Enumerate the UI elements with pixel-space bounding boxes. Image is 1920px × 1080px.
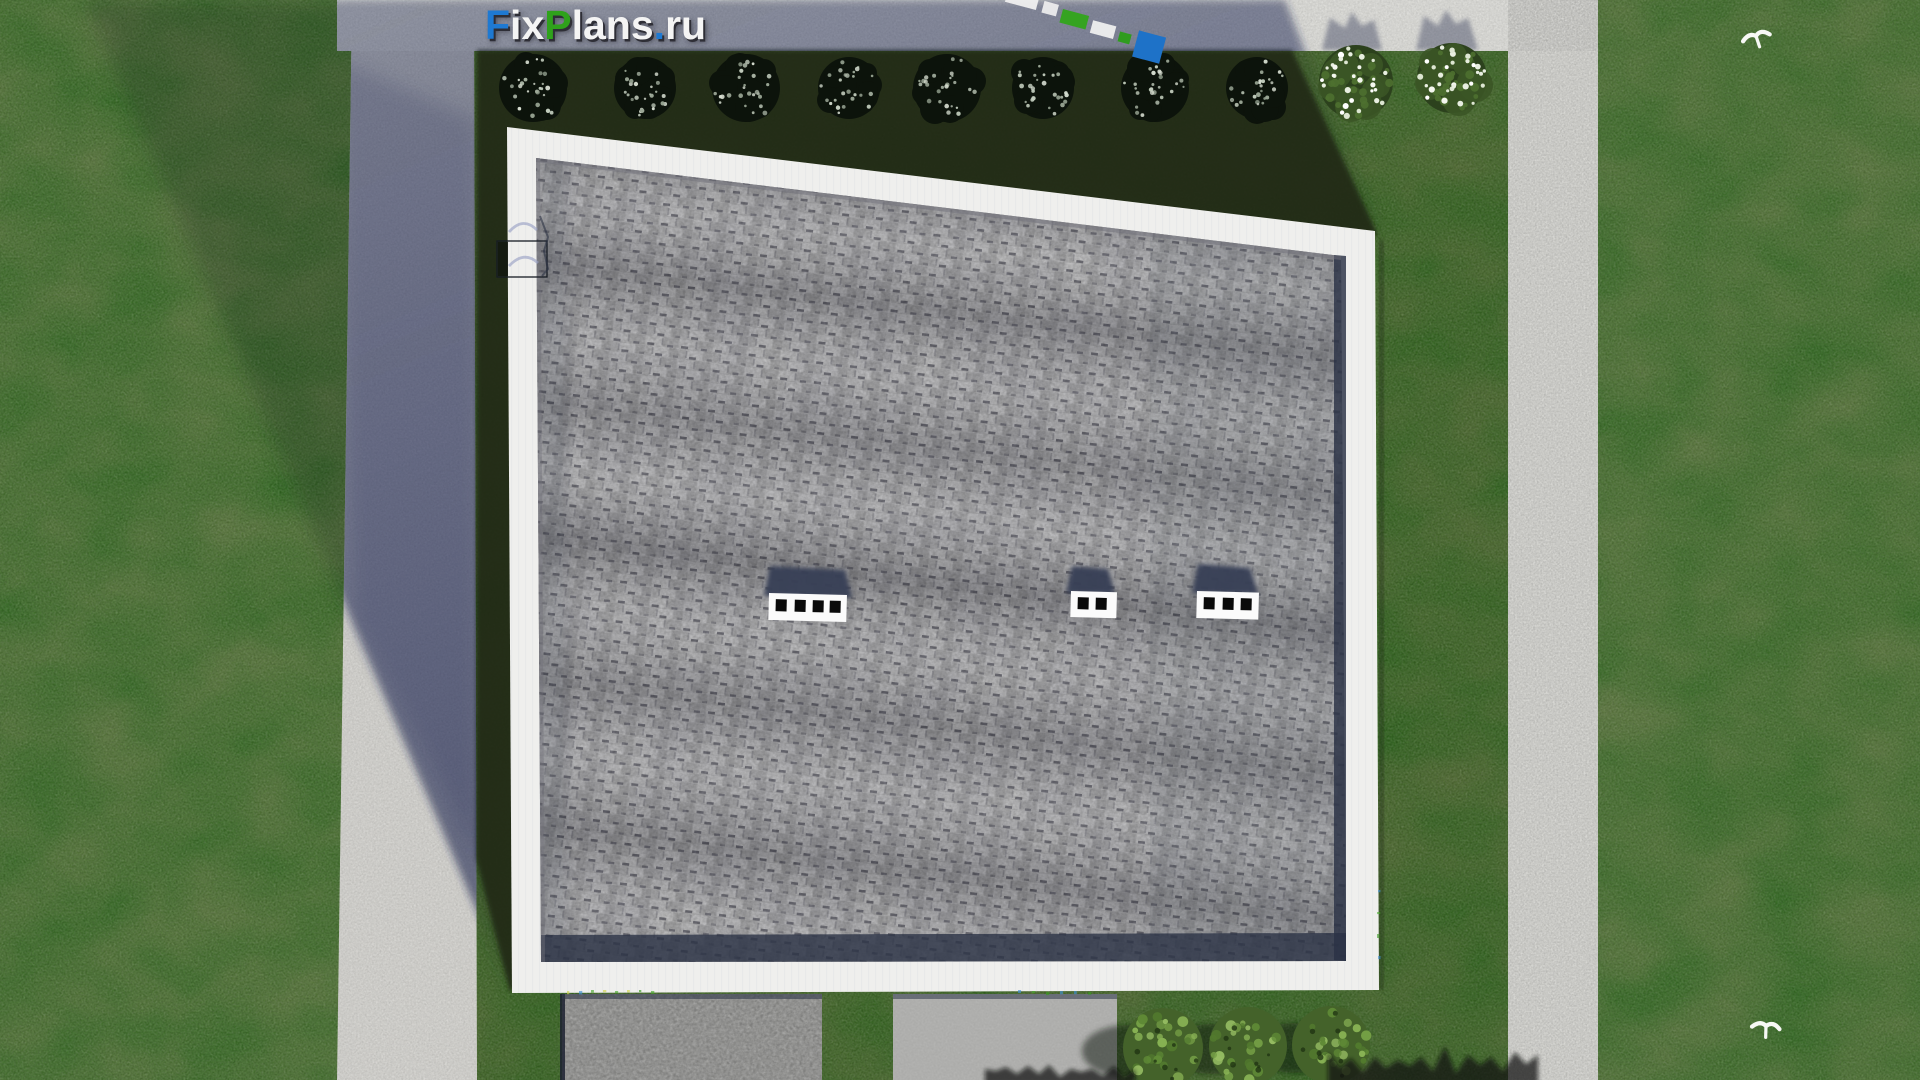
svg-text:FixPlans.ru: FixPlans.ru (485, 2, 706, 48)
